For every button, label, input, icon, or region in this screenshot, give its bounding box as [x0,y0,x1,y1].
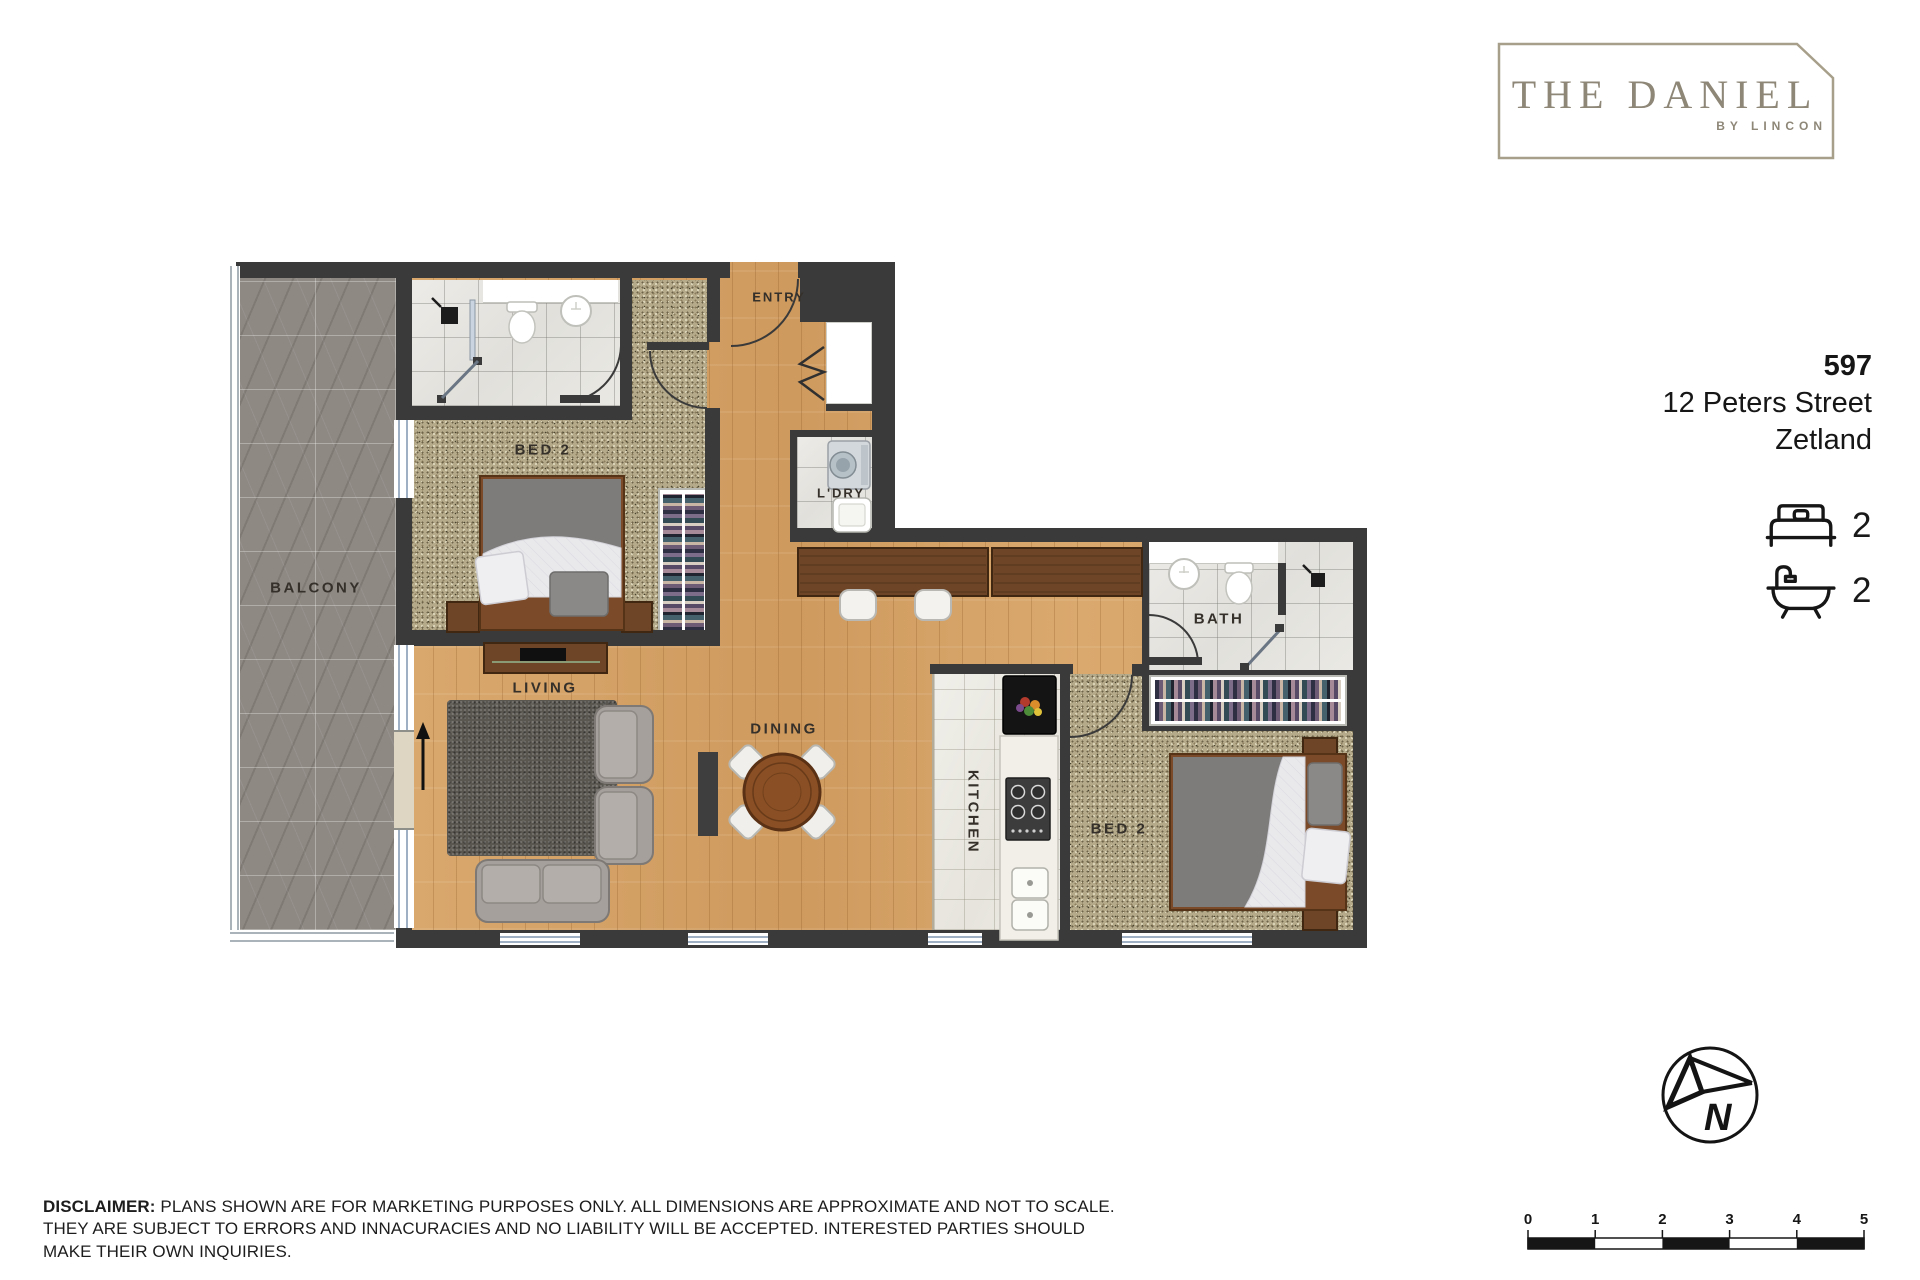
sofa [476,860,609,922]
tv-unit [484,643,607,673]
beds-count: 2 [1852,506,1878,546]
desk-bench [798,548,1142,620]
shower-symbol [432,298,482,403]
label-living: LIVING [512,680,577,697]
label-bed2-top: BED 2 [515,442,572,459]
scale-bar: 0 1 2 3 4 5 [1524,1208,1872,1264]
scale-tick-label: 0 [1524,1211,1532,1228]
label-bed2-right: BED 2 [1091,821,1148,838]
property-address: 597 12 Peters Street Zetland [1452,348,1872,459]
label-entry: ENTRY [752,290,806,305]
kitchen-counter [1000,736,1058,940]
disclaimer: DISCLAIMER: PLANS SHOWN ARE FOR MARKETIN… [43,1196,1135,1263]
shower-symbol [1240,563,1325,671]
compass-north-label: N [1704,1097,1733,1139]
label-balcony: BALCONY [270,580,362,597]
bed-icon [1764,502,1838,550]
label-bath: BATH [1194,611,1245,628]
scale-tick-label: 3 [1725,1211,1733,1228]
scale-tick-label: 1 [1591,1211,1599,1228]
disclaimer-label: DISCLAIMER: [43,1197,156,1216]
compass-north-icon: N [1654,1040,1766,1154]
bed-symbol [1170,738,1351,930]
washing-machine-symbol [828,441,870,489]
dining-set [698,743,837,841]
label-laundry: L'DRY [817,486,865,501]
logo-title: THE DANIEL [1512,72,1819,117]
bed-symbol [447,476,652,632]
armchair [595,787,653,864]
armchair [595,706,653,783]
baths-stat: 2 [1764,562,1878,620]
street-address: 12 Peters Street [1452,385,1872,422]
fridge-symbol [1003,676,1056,734]
property-stats: 2 2 [1764,502,1878,620]
basin-symbol [1169,559,1199,589]
basin-symbol [561,296,591,326]
laundry-tub-symbol [833,498,871,532]
baths-count: 2 [1852,571,1878,611]
label-dining: DINING [750,721,818,738]
toilet-symbol [1225,563,1253,604]
divider-panel [698,752,718,836]
north-entry-arrow [416,722,430,790]
suburb: Zetland [1452,422,1872,459]
door-swing [1070,675,1132,737]
label-kitchen: KITCHEN [965,770,982,854]
disclaimer-text: PLANS SHOWN ARE FOR MARKETING PURPOSES O… [43,1197,1115,1261]
brand-logo: THE DANIEL BY LINCON [1497,42,1835,160]
scale-tick-label: 4 [1793,1211,1802,1228]
bifold-door-symbol [800,347,824,400]
scale-tick-label: 5 [1860,1211,1868,1228]
scale-labels: 0 1 2 3 4 5 [1524,1211,1868,1228]
logo-subtitle: BY LINCON [1716,119,1827,133]
furniture-layer [230,258,1370,950]
beds-stat: 2 [1764,502,1878,550]
toilet-symbol [507,302,537,343]
door-swing [560,346,621,403]
floor-plan: BALCONY BED 2 ENTRY L'DRY BATH LIVING DI… [230,258,1370,950]
unit-number: 597 [1452,348,1872,385]
bath-icon [1764,562,1838,620]
page: { "logo": { "title": "THE DANIEL", "subt… [0,0,1920,1280]
scale-tick-label: 2 [1658,1211,1666,1228]
door-swing [650,351,707,408]
